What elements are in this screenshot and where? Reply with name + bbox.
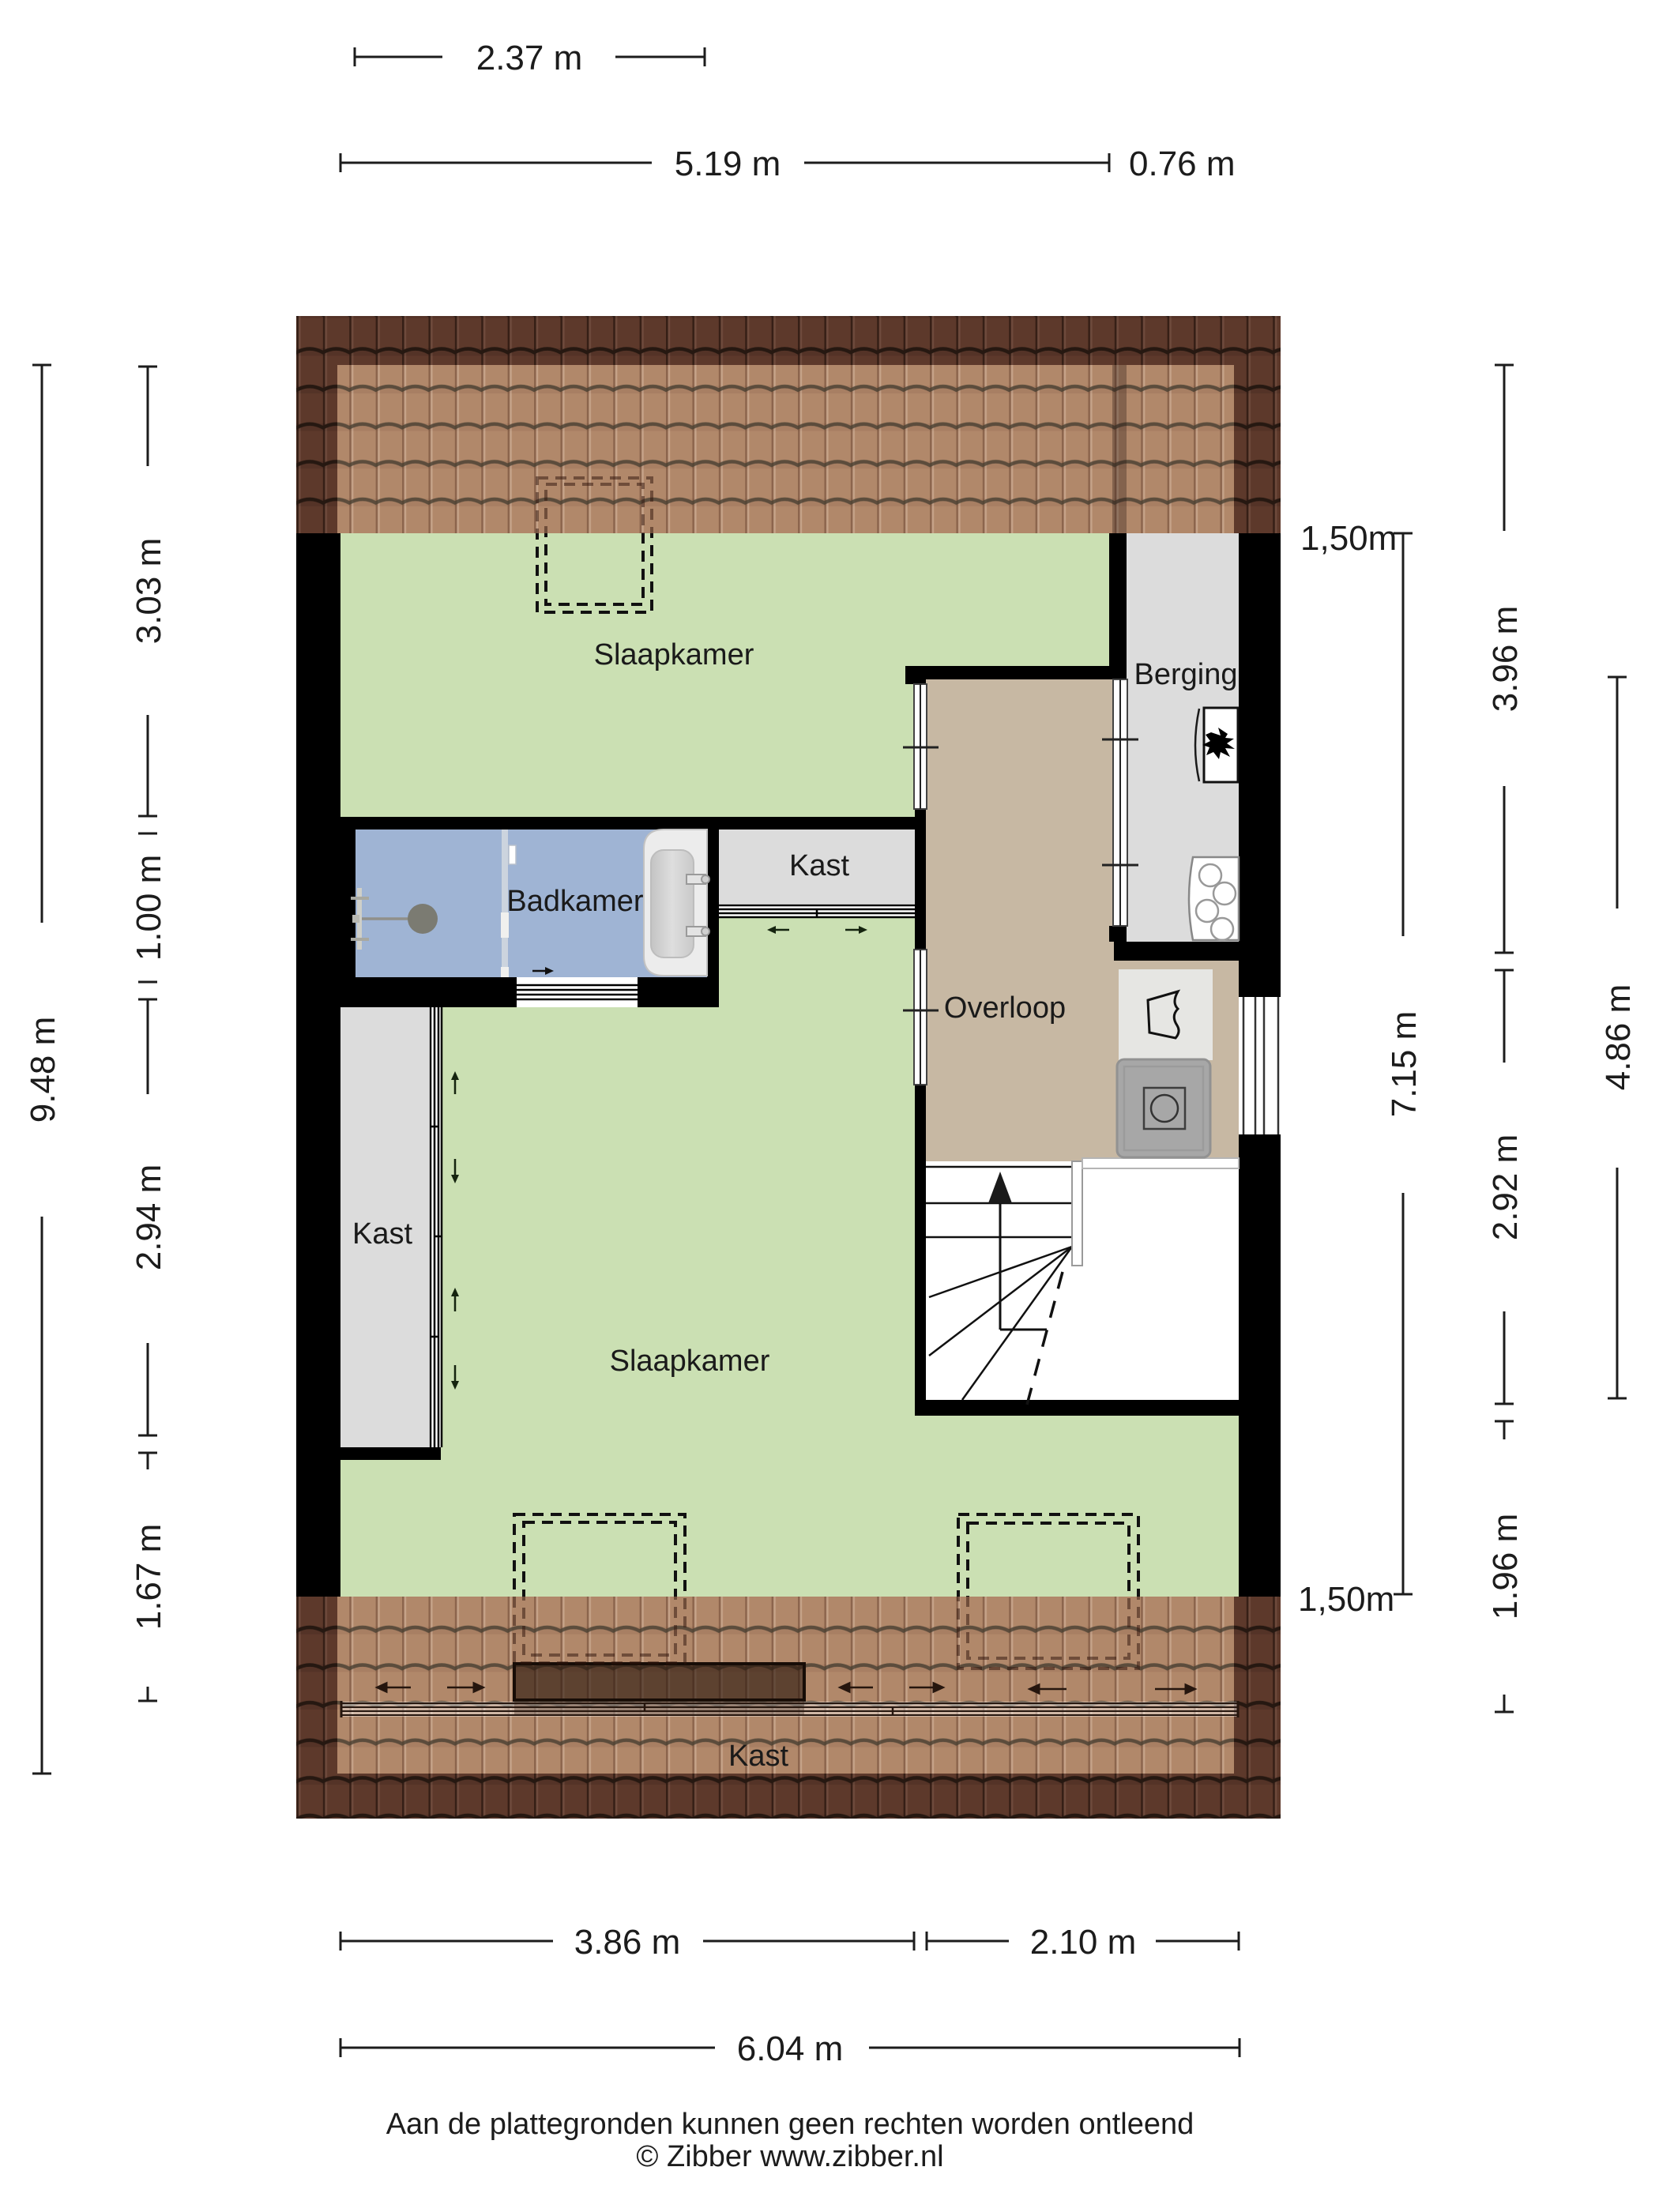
svg-text:2.94 m: 2.94 m xyxy=(130,1164,168,1271)
svg-text:7.15 m: 7.15 m xyxy=(1385,1011,1424,1118)
svg-text:3.96 m: 3.96 m xyxy=(1486,606,1525,713)
svg-text:2.10 m: 2.10 m xyxy=(1030,1923,1137,1962)
svg-text:Slaapkamer: Slaapkamer xyxy=(594,638,754,671)
svg-text:3.86 m: 3.86 m xyxy=(574,1923,681,1962)
svg-text:© Zibber www.zibber.nl: © Zibber www.zibber.nl xyxy=(636,2140,943,2173)
svg-text:Kast: Kast xyxy=(789,849,849,882)
svg-text:3.03 m: 3.03 m xyxy=(130,538,168,645)
svg-text:1,50m: 1,50m xyxy=(1300,519,1397,558)
svg-text:0.76 m: 0.76 m xyxy=(1129,145,1236,183)
svg-text:2.92 m: 2.92 m xyxy=(1486,1134,1525,1241)
svg-text:Overloop: Overloop xyxy=(944,991,1066,1025)
svg-text:Aan de plattegronden kunnen ge: Aan de plattegronden kunnen geen rechten… xyxy=(386,2108,1194,2141)
svg-text:Kast: Kast xyxy=(352,1217,412,1251)
svg-text:Berging: Berging xyxy=(1134,658,1238,691)
svg-text:Slaapkamer: Slaapkamer xyxy=(610,1345,770,1378)
svg-text:2.37 m: 2.37 m xyxy=(476,39,583,77)
svg-text:Badkamer: Badkamer xyxy=(506,885,644,918)
svg-text:1.96 m: 1.96 m xyxy=(1486,1514,1525,1620)
svg-text:1.67 m: 1.67 m xyxy=(130,1524,168,1631)
svg-text:Kast: Kast xyxy=(728,1740,788,1773)
svg-text:4.86 m: 4.86 m xyxy=(1599,984,1638,1091)
svg-text:1,50m: 1,50m xyxy=(1298,1580,1394,1619)
svg-text:9.48 m: 9.48 m xyxy=(24,1017,62,1123)
svg-text:1.00 m: 1.00 m xyxy=(130,855,168,961)
svg-text:5.19 m: 5.19 m xyxy=(675,145,781,183)
svg-text:6.04 m: 6.04 m xyxy=(737,2030,844,2068)
